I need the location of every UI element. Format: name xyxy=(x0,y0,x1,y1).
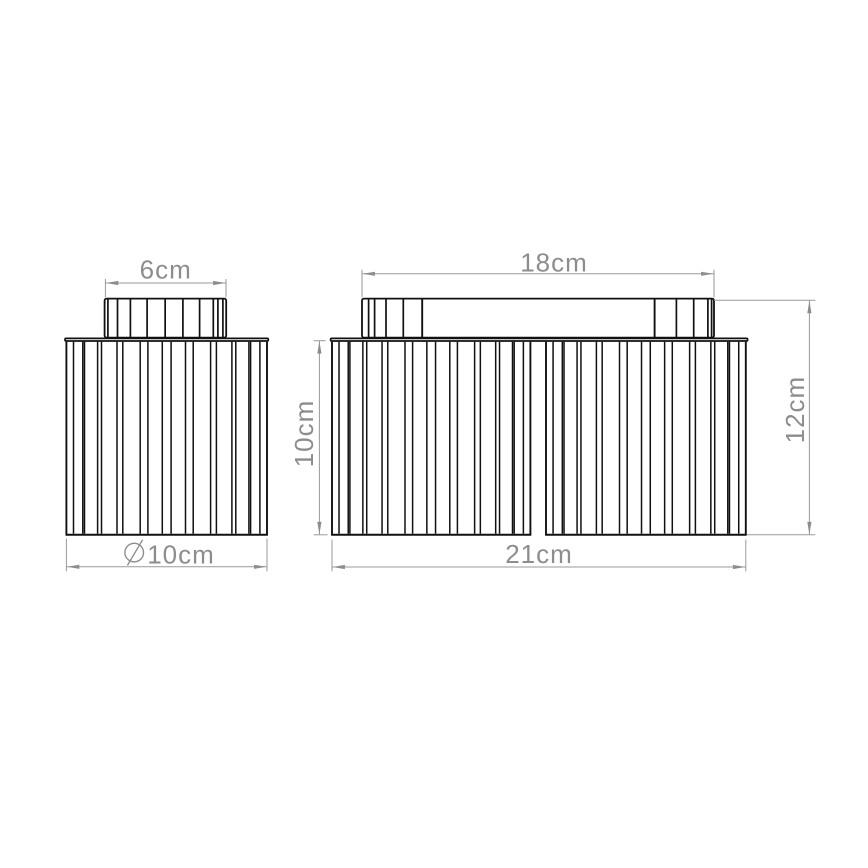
svg-text:18cm: 18cm xyxy=(520,247,588,277)
svg-text:6cm: 6cm xyxy=(140,254,192,284)
svg-text:10cm: 10cm xyxy=(289,400,319,468)
svg-text:12cm: 12cm xyxy=(780,376,810,444)
svg-text:21cm: 21cm xyxy=(505,539,573,569)
svg-text:10cm: 10cm xyxy=(147,539,215,569)
